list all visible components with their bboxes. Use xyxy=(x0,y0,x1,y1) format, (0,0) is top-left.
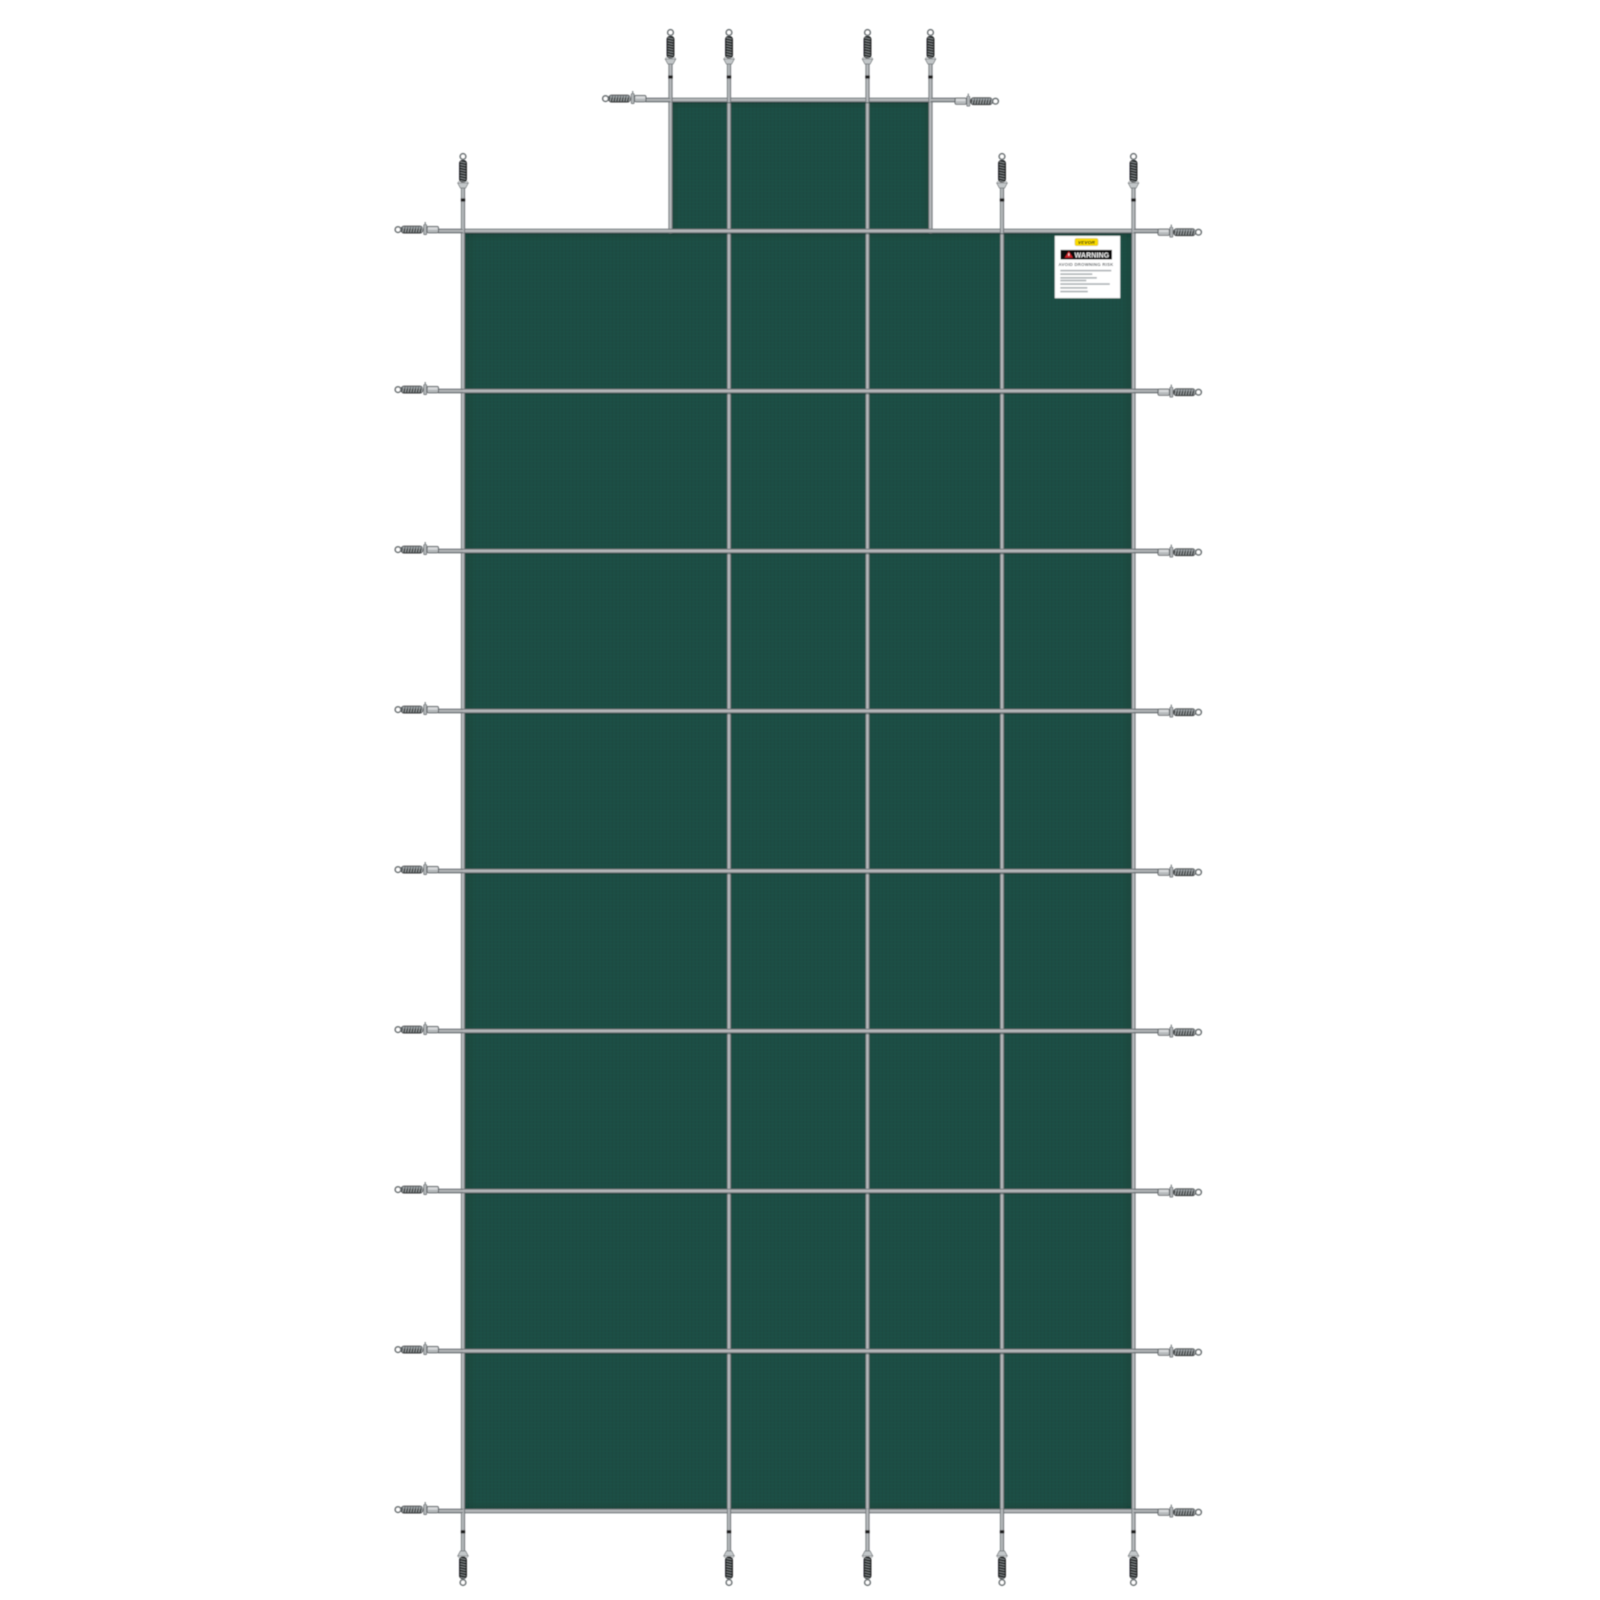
svg-text:VEVOR: VEVOR xyxy=(1078,240,1096,245)
svg-text:AVOID DROWNING RISK: AVOID DROWNING RISK xyxy=(1058,262,1114,267)
svg-text:WARNING: WARNING xyxy=(1075,253,1110,260)
